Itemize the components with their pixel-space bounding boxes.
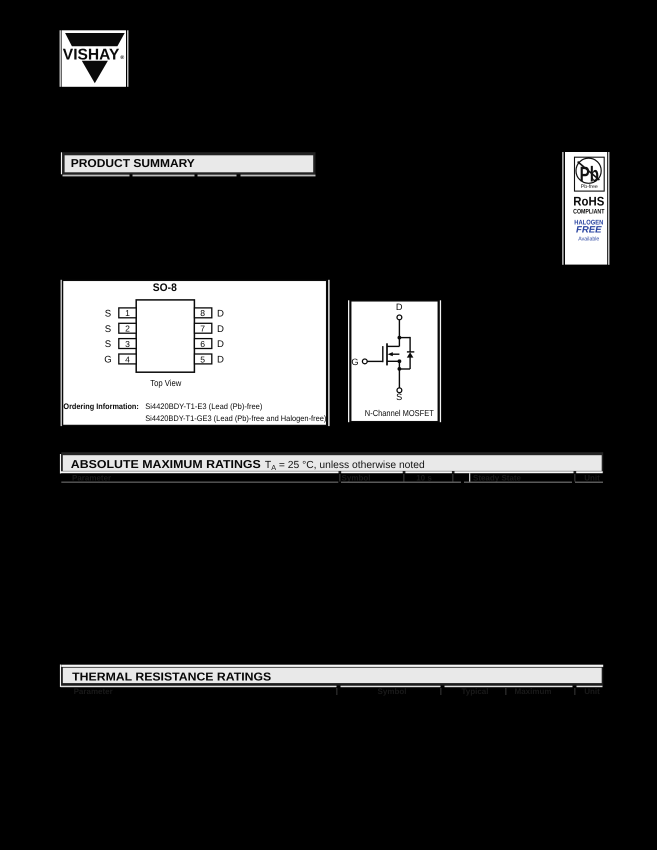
svg-text:D: D	[217, 355, 224, 366]
svg-text:COMPLIANT: COMPLIANT	[573, 209, 604, 216]
svg-text:Pb-free: Pb-free	[581, 184, 598, 190]
svg-text:5: 5	[200, 354, 205, 364]
svg-text:®: ®	[120, 55, 124, 61]
svg-text:TA = 25 °C, unless otherwise n: TA = 25 °C, unless otherwise noted	[265, 460, 425, 472]
svg-text:3: 3	[125, 339, 130, 349]
svg-text:N-Channel MOSFET: N-Channel MOSFET	[365, 408, 435, 418]
svg-text:Ordering Information:: Ordering Information:	[63, 402, 138, 411]
svg-text:Si4420BDY-T1-E3 (Lead (Pb)-fre: Si4420BDY-T1-E3 (Lead (Pb)-free)	[145, 402, 263, 411]
svg-text:Top View: Top View	[150, 378, 182, 388]
svg-text:S: S	[105, 324, 111, 335]
svg-text:Steady State: Steady State	[473, 473, 522, 482]
svg-text:Parameter: Parameter	[74, 687, 113, 696]
svg-text:D: D	[217, 308, 224, 319]
svg-text:ABSOLUTE MAXIMUM RATINGS: ABSOLUTE MAXIMUM RATINGS	[71, 459, 261, 471]
svg-text:THERMAL RESISTANCE RATINGS: THERMAL RESISTANCE RATINGS	[72, 671, 271, 683]
svg-text:FREE: FREE	[576, 225, 602, 235]
svg-text:RoHS: RoHS	[573, 195, 604, 209]
svg-text:Typical: Typical	[462, 687, 489, 696]
svg-text:6: 6	[200, 339, 205, 349]
svg-text:G: G	[351, 357, 358, 367]
svg-text:S: S	[396, 392, 402, 402]
svg-text:D: D	[217, 324, 224, 335]
svg-text:S: S	[105, 339, 111, 350]
svg-text:SO-8: SO-8	[153, 282, 177, 294]
svg-text:D: D	[217, 339, 224, 350]
svg-text:2: 2	[125, 324, 130, 334]
svg-text:Maximum: Maximum	[515, 687, 552, 696]
svg-text:8: 8	[200, 308, 205, 318]
svg-text:Symbol: Symbol	[378, 687, 407, 696]
svg-text:10 s: 10 s	[416, 473, 432, 482]
svg-text:4: 4	[125, 354, 130, 364]
svg-text:Si4420BDY-T1-GE3 (Lead (Pb)-fr: Si4420BDY-T1-GE3 (Lead (Pb)-free and Hal…	[145, 414, 327, 423]
svg-text:Parameter: Parameter	[72, 473, 111, 482]
svg-text:Available: Available	[578, 236, 599, 243]
svg-text:S: S	[105, 308, 111, 319]
svg-text:G: G	[104, 355, 111, 366]
svg-text:Unit: Unit	[584, 687, 600, 696]
svg-text:PRODUCT SUMMARY: PRODUCT SUMMARY	[71, 158, 195, 170]
svg-text:7: 7	[200, 324, 205, 334]
svg-text:Symbol: Symbol	[342, 473, 371, 482]
svg-text:Unit: Unit	[584, 473, 600, 482]
svg-text:D: D	[396, 302, 403, 312]
svg-text:1: 1	[125, 308, 130, 318]
